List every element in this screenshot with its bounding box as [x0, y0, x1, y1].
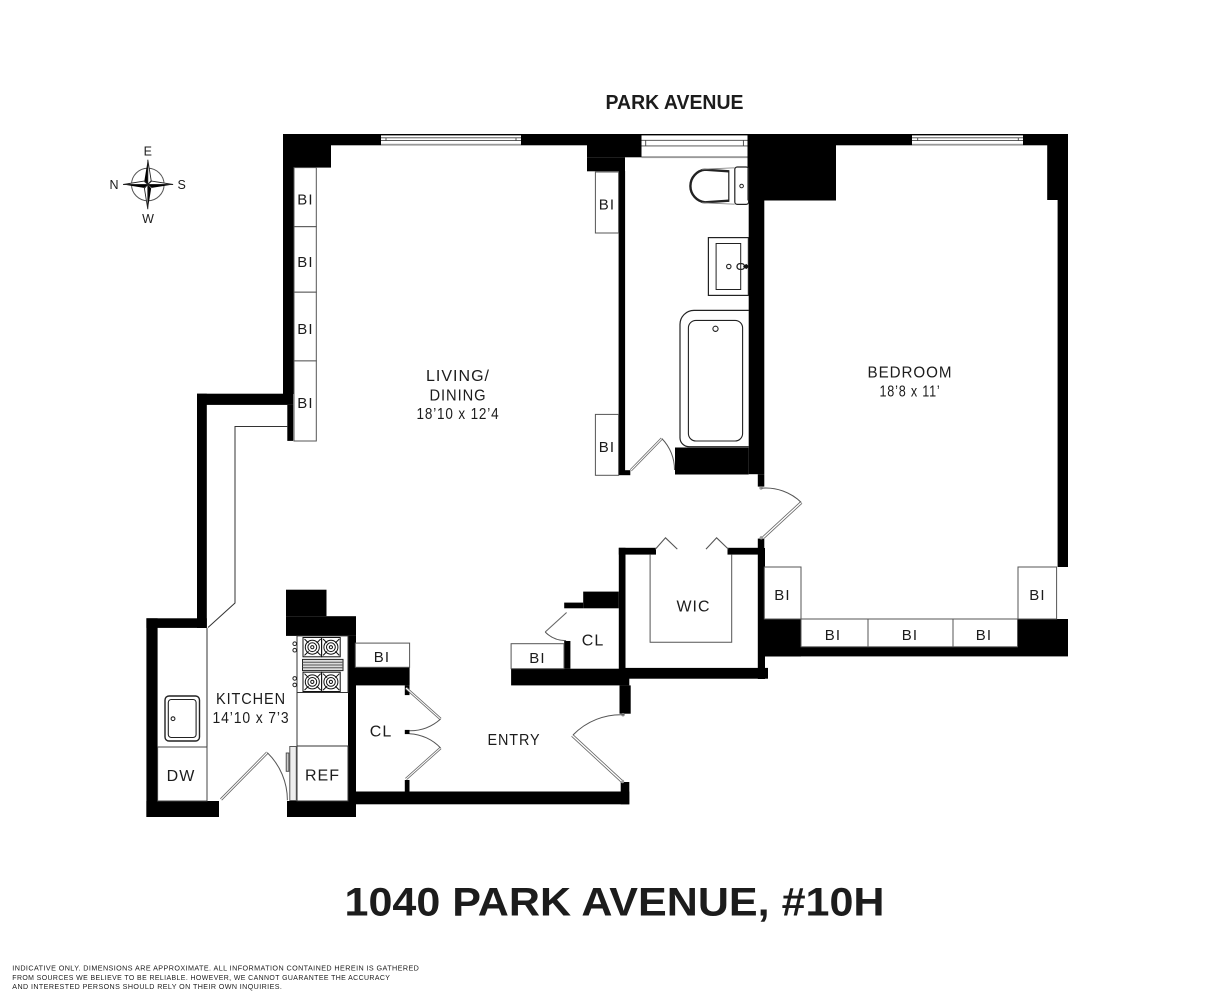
svg-text:LIVING/: LIVING/: [426, 368, 490, 385]
svg-text:14’10 x 7’3: 14’10 x 7’3: [213, 710, 290, 727]
svg-text:INDICATIVE ONLY. DIMENSIONS AR: INDICATIVE ONLY. DIMENSIONS ARE APPROXIM…: [12, 966, 419, 973]
svg-text:S: S: [178, 178, 186, 192]
svg-text:1040 PARK AVENUE, #10H: 1040 PARK AVENUE, #10H: [345, 881, 885, 925]
svg-text:DW: DW: [167, 768, 196, 785]
svg-text:BI: BI: [297, 192, 314, 209]
svg-text:KITCHEN: KITCHEN: [216, 691, 286, 708]
svg-text:BI: BI: [599, 197, 616, 214]
svg-text:CL: CL: [582, 633, 604, 650]
svg-text:18’8 x 11’: 18’8 x 11’: [880, 384, 941, 401]
svg-text:N: N: [109, 178, 118, 192]
svg-text:BI: BI: [976, 627, 993, 644]
svg-text:BI: BI: [297, 321, 314, 338]
svg-text:FROM SOURCES WE BELIEVE TO BE: FROM SOURCES WE BELIEVE TO BE RELIABLE. …: [12, 975, 390, 982]
svg-text:BI: BI: [297, 254, 314, 271]
svg-text:PARK AVENUE: PARK AVENUE: [606, 92, 744, 114]
svg-text:BI: BI: [1029, 587, 1046, 604]
svg-text:CL: CL: [370, 724, 392, 741]
svg-text:BEDROOM: BEDROOM: [868, 365, 953, 382]
svg-text:BI: BI: [529, 650, 546, 667]
svg-text:ENTRY: ENTRY: [488, 732, 541, 749]
svg-text:BI: BI: [825, 627, 842, 644]
svg-text:WIC: WIC: [677, 599, 711, 616]
svg-text:W: W: [142, 212, 154, 226]
svg-text:BI: BI: [774, 587, 791, 604]
svg-text:BI: BI: [599, 439, 616, 456]
svg-text:REF: REF: [305, 768, 340, 785]
svg-text:BI: BI: [297, 395, 314, 412]
svg-text:DINING: DINING: [430, 388, 487, 405]
svg-text:AND INTERESTED PERSONS SHOULD: AND INTERESTED PERSONS SHOULD RELY ON TH…: [12, 984, 282, 991]
svg-text:BI: BI: [374, 649, 391, 666]
svg-text:E: E: [144, 145, 152, 159]
svg-text:BI: BI: [902, 627, 919, 644]
svg-text:18’10 x 12’4: 18’10 x 12’4: [417, 406, 500, 423]
